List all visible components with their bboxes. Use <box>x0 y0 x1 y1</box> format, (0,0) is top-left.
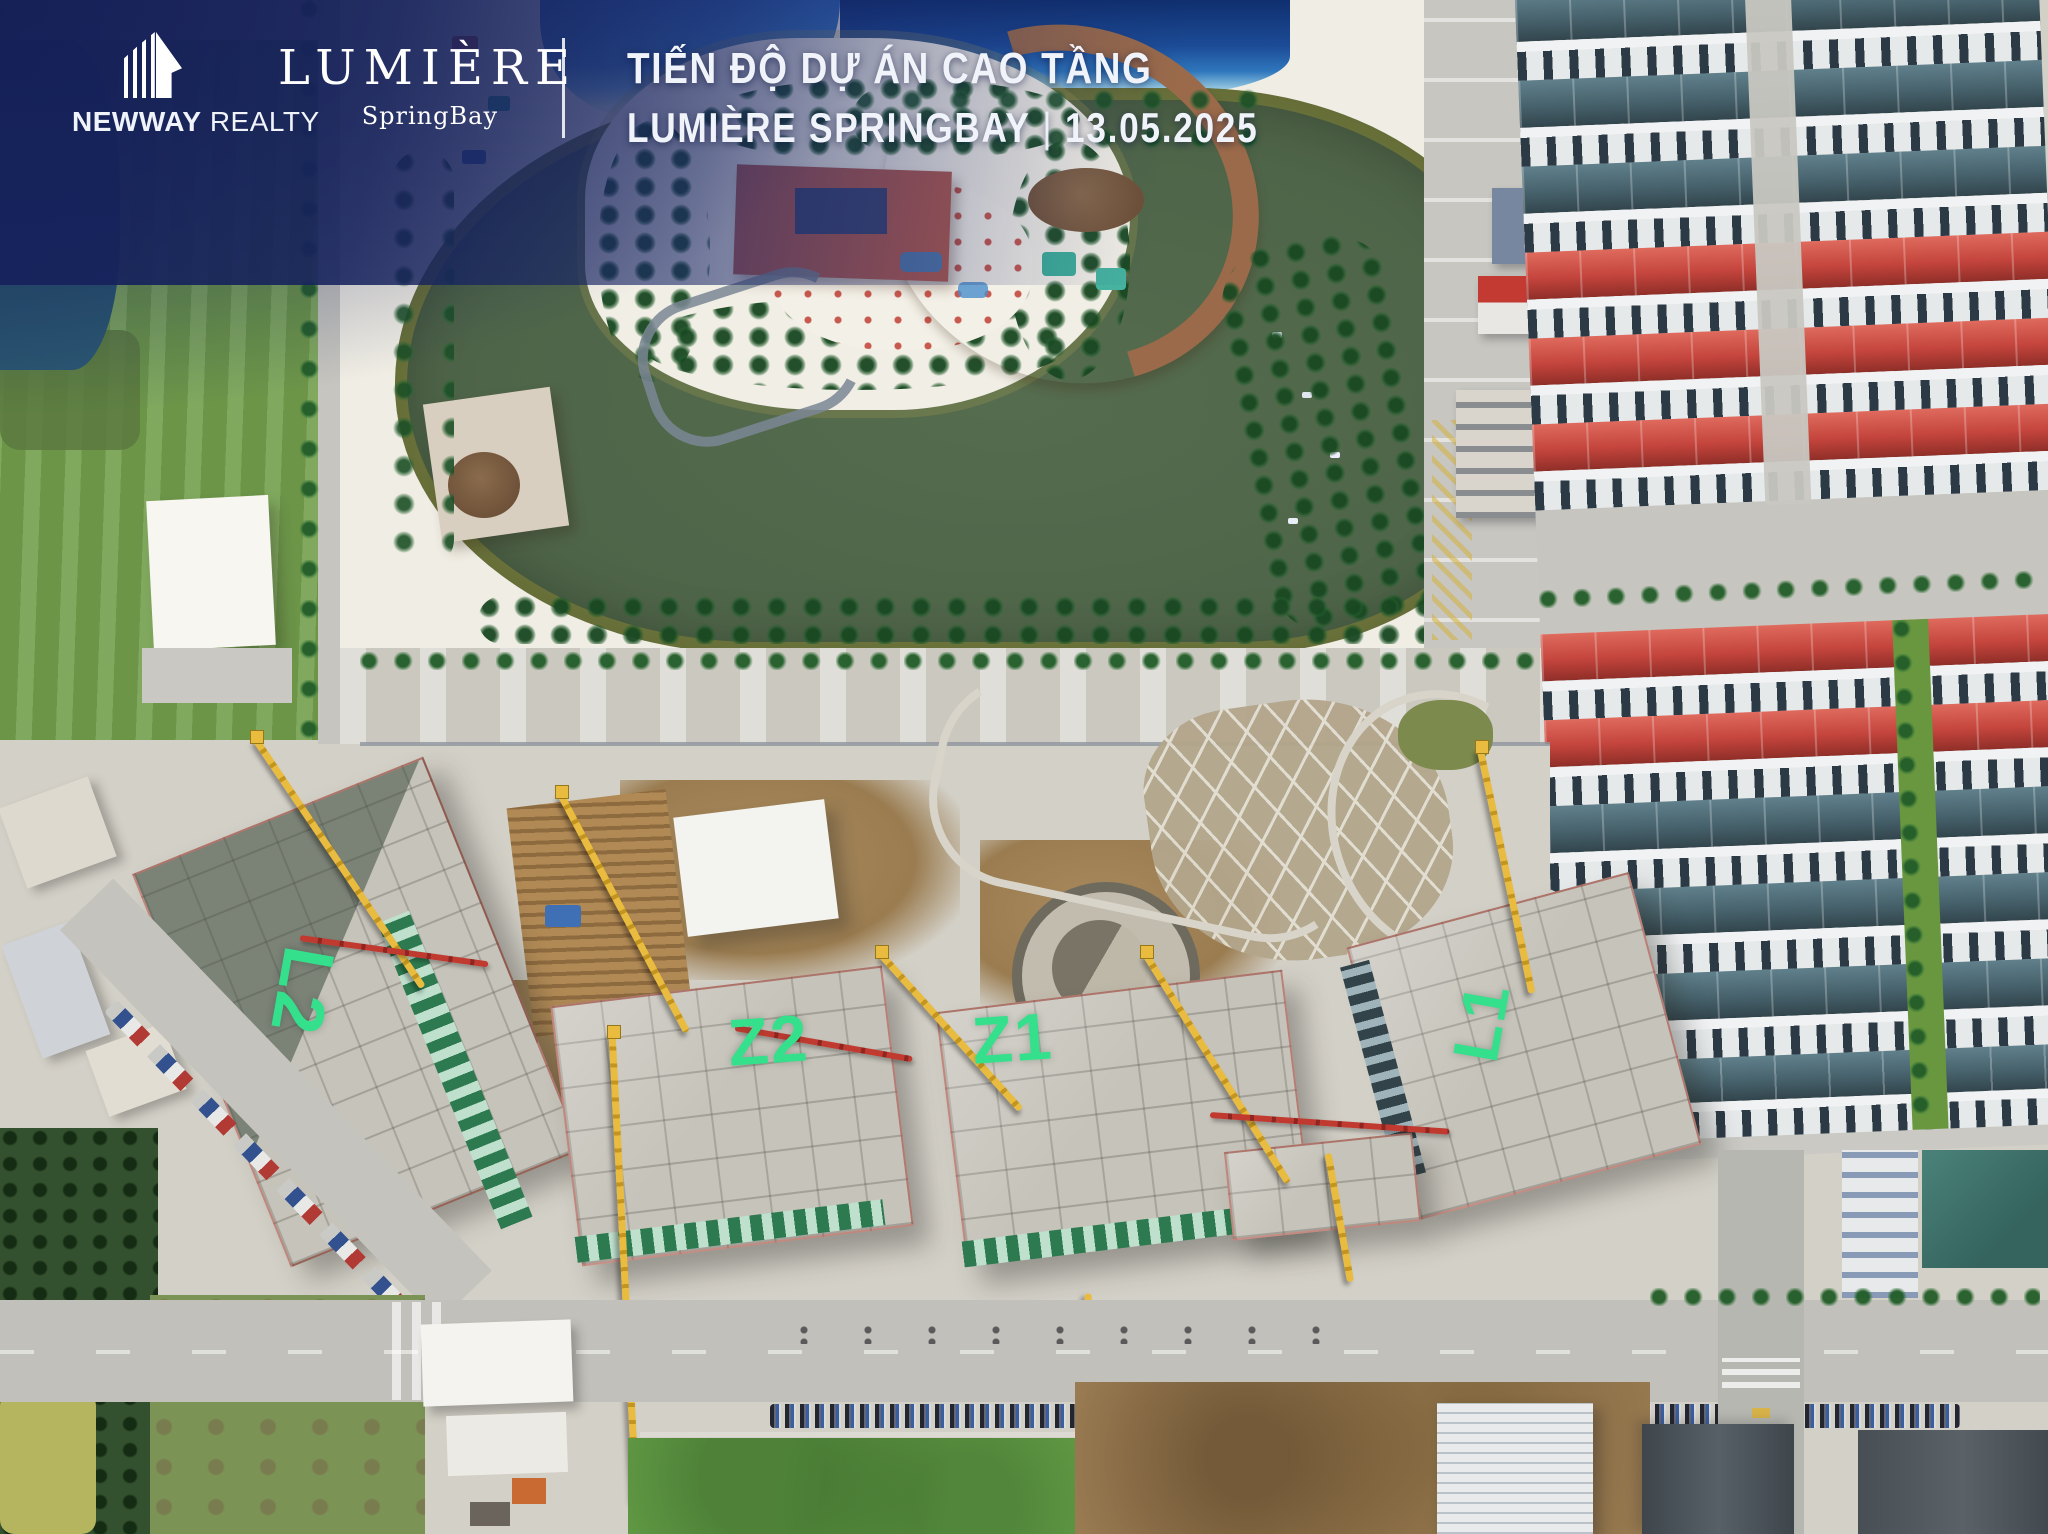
west-town-block-1 <box>0 776 117 888</box>
crane-mast-icon <box>250 730 264 744</box>
lumiere-subbrand: SpringBay <box>278 102 498 130</box>
newway-logo: NEWWAY REALTY <box>72 30 292 140</box>
sales-gallery-building <box>146 495 276 651</box>
tealroof-building <box>1922 1150 2048 1268</box>
site-label-l1: L1 <box>1438 977 1525 1067</box>
south-shore-palms <box>478 596 1478 644</box>
white-shop-building <box>1842 1150 1918 1298</box>
newway-logo-text: NEWWAY REALTY <box>72 106 302 138</box>
progress-date: 13.05.2025 <box>1065 104 1258 151</box>
shed-white-1 <box>421 1319 574 1406</box>
site-label-l2: L2 <box>254 941 350 1042</box>
header-divider <box>562 38 565 138</box>
crane-mast-icon <box>1475 740 1489 754</box>
newway-name-bold: NEWWAY <box>72 106 202 137</box>
newway-logo-icon-sail <box>156 32 182 98</box>
lumiere-logo: LUMIÈRE SpringBay <box>278 40 498 140</box>
crane-mast-icon <box>555 785 569 799</box>
project-name: LUMIÈRE SPRINGBAY <box>627 104 1031 151</box>
orange-roof-hut <box>512 1478 546 1504</box>
darkroof-building-long <box>1642 1424 1794 1534</box>
darkroof-buildings-corner <box>1858 1430 2048 1534</box>
beach-club-dome <box>448 452 520 518</box>
site-label-z1: Z1 <box>969 997 1055 1078</box>
crane-mast-icon <box>875 945 889 959</box>
canal-pond <box>0 1392 96 1534</box>
aerial-progress-photo: L2 Z2 Z1 L1 NEWWAY REALTY LUMIÈRE Spring… <box>0 0 2048 1534</box>
progress-title: TIẾN ĐỘ DỰ ÁN CAO TẦNG LUMIÈRE SPRINGBAY… <box>627 44 1387 152</box>
pedestrian-dots <box>800 1326 1320 1344</box>
crosswalk-southeast <box>1722 1358 1800 1388</box>
shed-white-2 <box>446 1412 568 1476</box>
white-shed <box>673 799 838 937</box>
crane-mast-icon <box>1140 945 1154 959</box>
townhouse-street <box>1535 490 2048 635</box>
blue-tarp-1 <box>545 905 581 927</box>
parking-apron <box>142 648 292 703</box>
green-field-south <box>628 1438 1078 1534</box>
site-label-z2: Z2 <box>725 999 811 1080</box>
slat-roof-building <box>1437 1403 1593 1534</box>
progress-title-line1: TIẾN ĐỘ DỰ ÁN CAO TẦNG <box>627 44 1265 94</box>
lumiere-wordmark: LUMIÈRE <box>278 40 498 96</box>
southeast-street-trees <box>1650 1288 2040 1306</box>
progress-title-line2: LUMIÈRE SPRINGBAY|13.05.2025 <box>627 104 1265 152</box>
dark-hut <box>470 1502 510 1526</box>
crane-mast-icon <box>607 1025 621 1039</box>
title-separator: | <box>1042 104 1053 151</box>
promenade-trees <box>360 652 1540 672</box>
